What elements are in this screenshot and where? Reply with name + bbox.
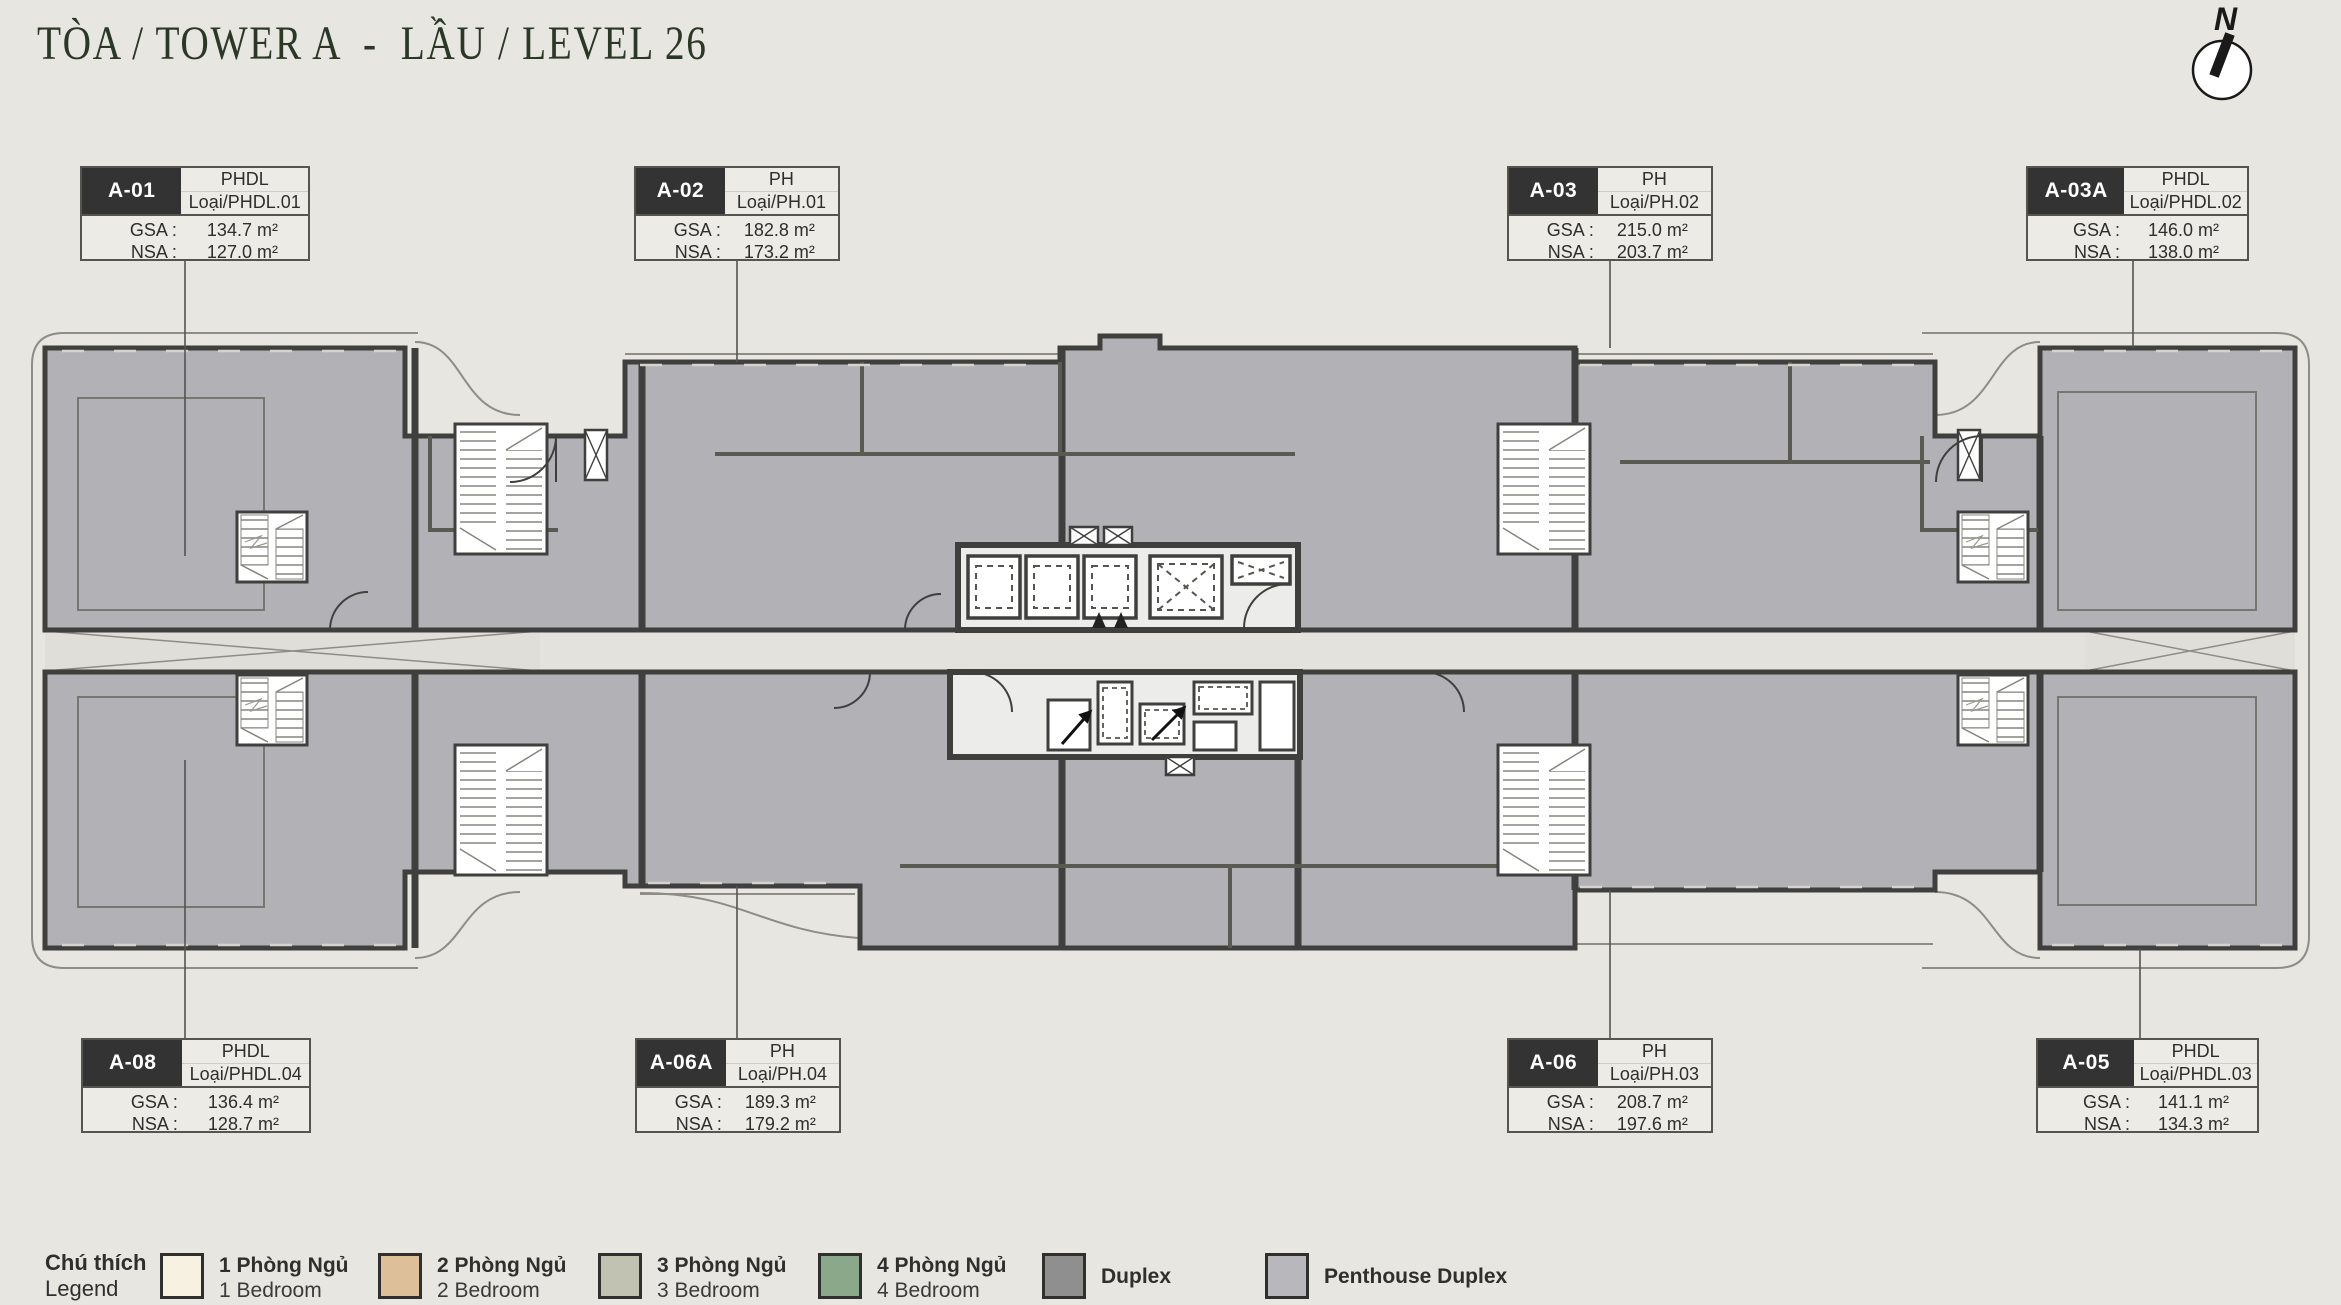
corridor (45, 630, 2295, 672)
gsa-label: GSA : (1509, 1092, 1594, 1113)
legend-item-4-bedroom: 4 Phòng Ngủ 4 Bedroom (818, 1253, 1007, 1303)
gsa-value: 182.8 m² (721, 220, 838, 241)
nsa-label: NSA : (1509, 1114, 1594, 1135)
legend-label-en: 1 Bedroom (219, 1278, 349, 1303)
unit-id: A-08 (83, 1040, 182, 1086)
gsa-label: GSA : (82, 220, 177, 241)
gsa-label: GSA : (83, 1092, 178, 1113)
legend-swatch-3-bedroom (598, 1253, 642, 1299)
unit-id: A-02 (636, 168, 725, 214)
legend-swatch-1-bedroom (160, 1253, 204, 1299)
unit-type: PH (726, 1040, 839, 1064)
gsa-value: 208.7 m² (1594, 1092, 1711, 1113)
legend-label-vi: 3 Phòng Ngủ (657, 1253, 787, 1278)
gsa-value: 136.4 m² (178, 1092, 309, 1113)
nsa-value: 138.0 m² (2120, 242, 2247, 263)
nsa-value: 173.2 m² (721, 242, 838, 263)
legend-heading-vi: Chú thích (45, 1250, 146, 1276)
unit-label-a01[interactable]: A-01 PHDL Loại/PHDL.01 GSA :134.7 m² NSA… (80, 166, 310, 261)
unit-type: PHDL (182, 1040, 309, 1064)
unit-type-code: Loại/PHDL.04 (182, 1064, 309, 1087)
nsa-label: NSA : (2028, 242, 2120, 263)
legend-label-vi: 1 Phòng Ngủ (219, 1253, 349, 1278)
nsa-value: 127.0 m² (177, 242, 308, 263)
nsa-label: NSA : (636, 242, 721, 263)
nsa-label: NSA : (82, 242, 177, 263)
unit-label-a05[interactable]: A-05 PHDL Loại/PHDL.03 GSA :141.1 m² NSA… (2036, 1038, 2259, 1133)
nsa-value: 197.6 m² (1594, 1114, 1711, 1135)
unit-type: PHDL (2134, 1040, 2257, 1064)
elevator-core-top (958, 545, 1298, 630)
gsa-value: 141.1 m² (2130, 1092, 2257, 1113)
unit-id: A-06 (1509, 1040, 1598, 1086)
legend-item-penthouse-duplex: Penthouse Duplex (1265, 1253, 1507, 1299)
nsa-value: 128.7 m² (178, 1114, 309, 1135)
unit-type-code: Loại/PH.04 (726, 1064, 839, 1087)
floor-plan-drawing (0, 0, 2341, 1305)
unit-id: A-06A (637, 1040, 726, 1086)
gsa-label: GSA : (637, 1092, 722, 1113)
legend-heading: Chú thích Legend (45, 1250, 146, 1302)
nsa-label: NSA : (637, 1114, 722, 1135)
legend-label-en: 4 Bedroom (877, 1278, 1007, 1303)
unit-type-code: Loại/PHDL.03 (2134, 1064, 2257, 1087)
unit-type-code: Loại/PH.01 (725, 192, 838, 215)
gsa-label: GSA : (636, 220, 721, 241)
unit-type: PH (1598, 1040, 1711, 1064)
unit-id: A-01 (82, 168, 181, 214)
legend-label-en: 3 Bedroom (657, 1278, 787, 1303)
legend-item-1-bedroom: 1 Phòng Ngủ 1 Bedroom (160, 1253, 349, 1303)
legend-label-vi: 2 Phòng Ngủ (437, 1253, 567, 1278)
unit-type-code: Loại/PHDL.01 (181, 192, 308, 215)
unit-id: A-03 (1509, 168, 1598, 214)
gsa-value: 134.7 m² (177, 220, 308, 241)
unit-type-code: Loại/PHDL.02 (2124, 192, 2247, 215)
unit-label-a06[interactable]: A-06 PH Loại/PH.03 GSA :208.7 m² NSA :19… (1507, 1038, 1713, 1133)
unit-label-a03[interactable]: A-03 PH Loại/PH.02 GSA :215.0 m² NSA :20… (1507, 166, 1713, 261)
legend-item-3-bedroom: 3 Phòng Ngủ 3 Bedroom (598, 1253, 787, 1303)
legend-swatch-4-bedroom (818, 1253, 862, 1299)
service-core-bottom (950, 672, 1300, 757)
unit-label-a03a[interactable]: A-03A PHDL Loại/PHDL.02 GSA :146.0 m² NS… (2026, 166, 2249, 261)
legend-label-vi: Penthouse Duplex (1324, 1264, 1507, 1289)
gsa-value: 146.0 m² (2120, 220, 2247, 241)
legend-label-vi: Duplex (1101, 1264, 1171, 1289)
legend-item-duplex: Duplex (1042, 1253, 1171, 1299)
unit-type: PHDL (2124, 168, 2247, 192)
legend-swatch-2-bedroom (378, 1253, 422, 1299)
gsa-label: GSA : (2038, 1092, 2130, 1113)
unit-label-a06a[interactable]: A-06A PH Loại/PH.04 GSA :189.3 m² NSA :1… (635, 1038, 841, 1133)
nsa-value: 179.2 m² (722, 1114, 839, 1135)
nsa-label: NSA : (2038, 1114, 2130, 1135)
unit-type: PHDL (181, 168, 308, 192)
unit-label-a08[interactable]: A-08 PHDL Loại/PHDL.04 GSA :136.4 m² NSA… (81, 1038, 311, 1133)
legend-label-en: 2 Bedroom (437, 1278, 567, 1303)
legend-heading-en: Legend (45, 1276, 146, 1302)
unit-type-code: Loại/PH.02 (1598, 192, 1711, 215)
gsa-label: GSA : (2028, 220, 2120, 241)
gsa-value: 215.0 m² (1594, 220, 1711, 241)
nsa-label: NSA : (83, 1114, 178, 1135)
unit-type: PH (725, 168, 838, 192)
unit-type: PH (1598, 168, 1711, 192)
legend-item-2-bedroom: 2 Phòng Ngủ 2 Bedroom (378, 1253, 567, 1303)
legend-swatch-duplex (1042, 1253, 1086, 1299)
nsa-value: 203.7 m² (1594, 242, 1711, 263)
unit-label-a02[interactable]: A-02 PH Loại/PH.01 GSA :182.8 m² NSA :17… (634, 166, 840, 261)
gsa-label: GSA : (1509, 220, 1594, 241)
unit-id: A-05 (2038, 1040, 2134, 1086)
unit-id: A-03A (2028, 168, 2124, 214)
gsa-value: 189.3 m² (722, 1092, 839, 1113)
nsa-value: 134.3 m² (2130, 1114, 2257, 1135)
nsa-label: NSA : (1509, 242, 1594, 263)
legend-label-vi: 4 Phòng Ngủ (877, 1253, 1007, 1278)
legend-swatch-penthouse-duplex (1265, 1253, 1309, 1299)
unit-type-code: Loại/PH.03 (1598, 1064, 1711, 1087)
